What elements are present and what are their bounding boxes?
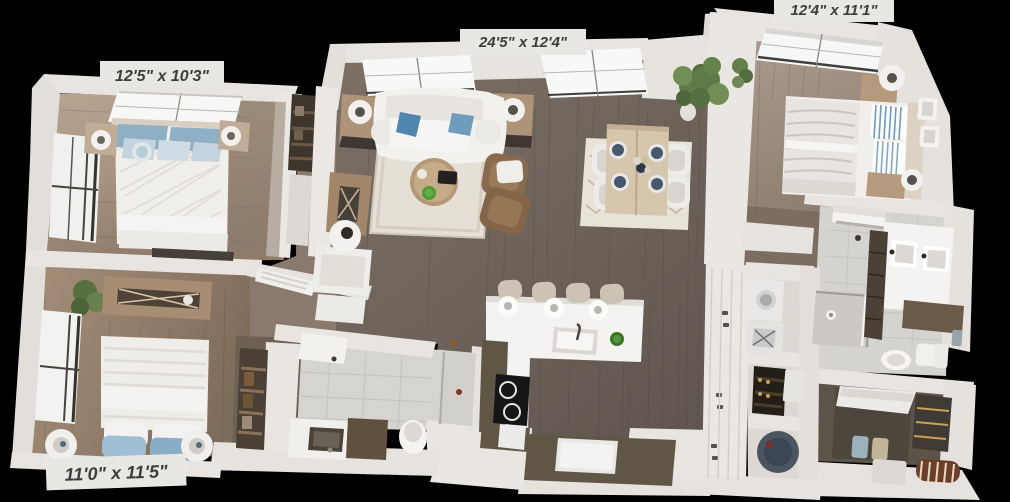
svg-text:11'0" x 11'5": 11'0" x 11'5"	[64, 461, 168, 485]
svg-text:12'4" x 11'1": 12'4" x 11'1"	[791, 2, 879, 19]
svg-text:24'5" x 12'4": 24'5" x 12'4"	[478, 34, 568, 51]
svg-text:12'5" x 10'3": 12'5" x 10'3"	[115, 68, 209, 85]
